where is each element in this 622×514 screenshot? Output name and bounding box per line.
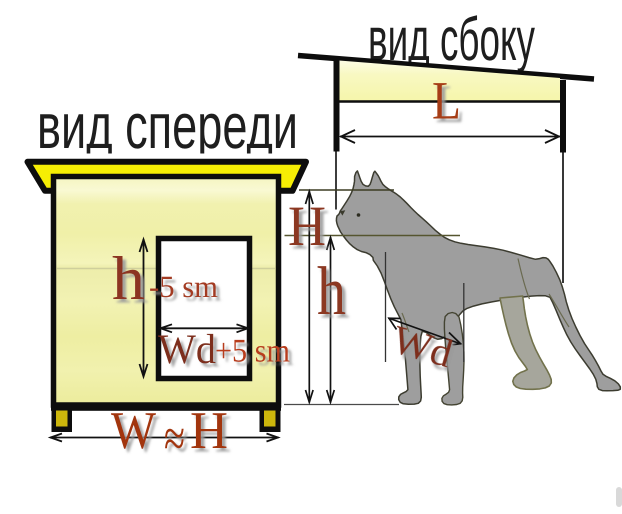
svg-text:L: L	[432, 71, 461, 131]
svg-text:H: H	[288, 195, 326, 258]
svg-text:-5 sm: -5 sm	[149, 269, 218, 304]
svg-text:+5 sm: +5 sm	[215, 334, 290, 370]
svg-text:h: h	[112, 245, 145, 313]
svg-text:h: h	[317, 253, 346, 329]
svg-text:≈: ≈	[164, 410, 185, 468]
svg-text:H: H	[190, 402, 228, 460]
svg-text:Wd: Wd	[158, 327, 216, 373]
svg-text:W: W	[111, 402, 156, 460]
svg-text:вид спереди: вид спереди	[37, 90, 298, 162]
